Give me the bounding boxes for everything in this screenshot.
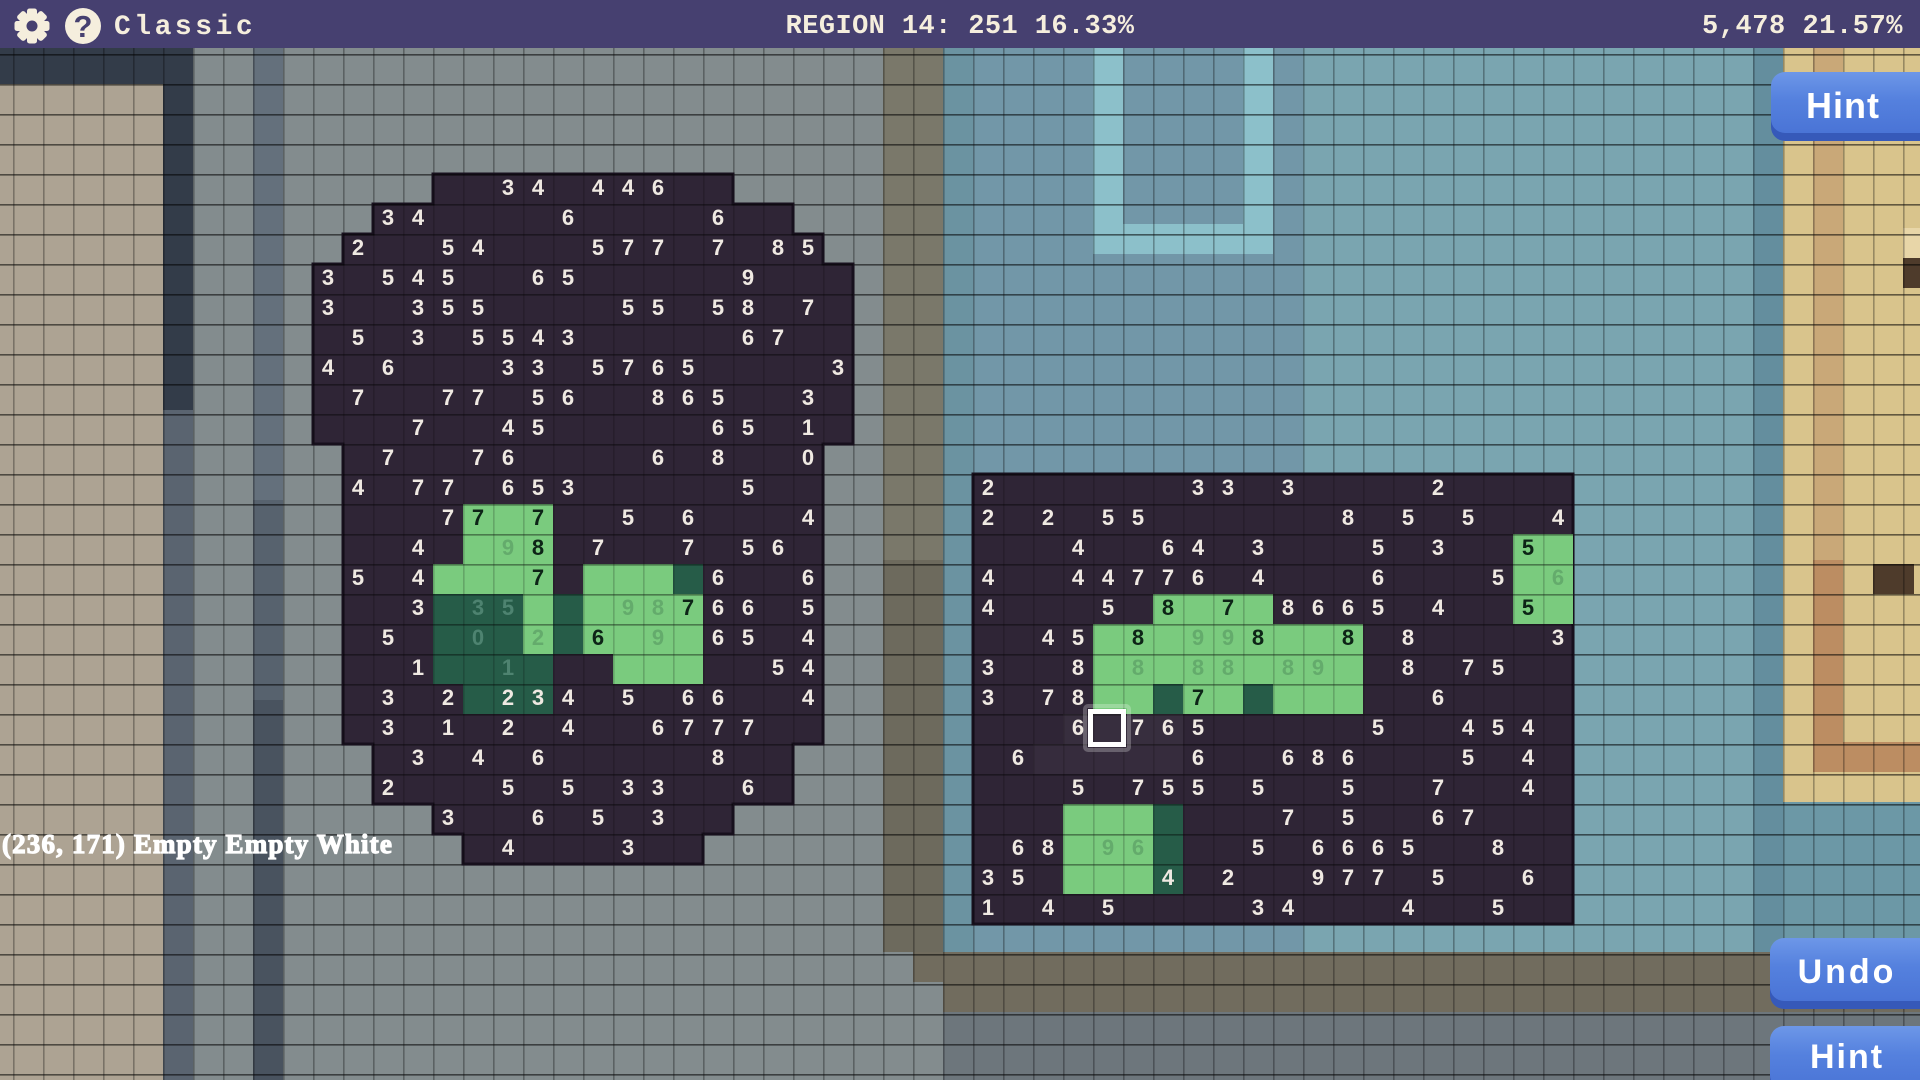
svg-text:9: 9: [1102, 835, 1114, 860]
svg-text:4: 4: [532, 175, 545, 200]
svg-text:5,478 21.57%: 5,478 21.57%: [1702, 12, 1903, 42]
svg-text:5: 5: [1192, 775, 1204, 800]
svg-text:7: 7: [472, 445, 484, 470]
svg-text:8: 8: [1342, 505, 1354, 530]
svg-text:4: 4: [1102, 565, 1115, 590]
svg-text:5: 5: [742, 535, 754, 560]
svg-text:8: 8: [1312, 745, 1324, 770]
svg-text:2: 2: [502, 685, 514, 710]
svg-text:6: 6: [652, 355, 664, 380]
svg-text:3: 3: [802, 385, 814, 410]
svg-text:5: 5: [562, 265, 574, 290]
svg-text:5: 5: [712, 295, 724, 320]
svg-text:7: 7: [472, 505, 484, 530]
svg-text:5: 5: [622, 295, 634, 320]
svg-text:2: 2: [1042, 505, 1054, 530]
svg-text:7: 7: [1132, 715, 1144, 740]
svg-text:3: 3: [382, 685, 394, 710]
svg-text:5: 5: [442, 265, 454, 290]
svg-text:2: 2: [1432, 475, 1444, 500]
svg-text:7: 7: [1042, 685, 1054, 710]
svg-text:4: 4: [412, 205, 425, 230]
svg-text:5: 5: [1132, 505, 1144, 530]
svg-text:7: 7: [382, 445, 394, 470]
svg-text:7: 7: [712, 235, 724, 260]
svg-text:5: 5: [1372, 535, 1384, 560]
svg-text:8: 8: [652, 595, 664, 620]
svg-text:4: 4: [982, 595, 995, 620]
svg-text:8: 8: [1072, 685, 1084, 710]
svg-text:7: 7: [682, 595, 694, 620]
svg-text:5: 5: [772, 655, 784, 680]
svg-text:4: 4: [1042, 625, 1055, 650]
svg-text:8: 8: [1192, 655, 1204, 680]
svg-text:6: 6: [1312, 835, 1324, 860]
svg-text:6: 6: [1282, 745, 1294, 770]
svg-text:3: 3: [652, 775, 664, 800]
svg-text:8: 8: [1072, 655, 1084, 680]
svg-text:5: 5: [712, 385, 724, 410]
svg-text:6: 6: [1192, 565, 1204, 590]
svg-text:9: 9: [502, 535, 514, 560]
svg-text:5: 5: [1192, 715, 1204, 740]
svg-text:4: 4: [1522, 745, 1535, 770]
svg-text:4: 4: [352, 475, 365, 500]
svg-text:5: 5: [1072, 625, 1084, 650]
svg-text:3: 3: [1432, 535, 1444, 560]
svg-text:3: 3: [382, 715, 394, 740]
svg-text:6: 6: [1012, 835, 1024, 860]
svg-text:3: 3: [562, 325, 574, 350]
svg-text:3: 3: [532, 685, 544, 710]
svg-text:3: 3: [1252, 535, 1264, 560]
svg-text:1: 1: [442, 715, 454, 740]
svg-text:3: 3: [1192, 475, 1204, 500]
svg-text:5: 5: [1252, 775, 1264, 800]
svg-text:3: 3: [412, 325, 424, 350]
svg-text:7: 7: [532, 565, 544, 590]
svg-text:7: 7: [532, 505, 544, 530]
svg-text:6: 6: [712, 415, 724, 440]
svg-text:7: 7: [1372, 865, 1384, 890]
svg-text:4: 4: [412, 265, 425, 290]
svg-text:6: 6: [1342, 595, 1354, 620]
svg-text:4: 4: [802, 625, 815, 650]
svg-text:7: 7: [412, 475, 424, 500]
svg-text:8: 8: [1222, 655, 1234, 680]
svg-text:4: 4: [472, 745, 485, 770]
svg-text:5: 5: [502, 775, 514, 800]
svg-text:6: 6: [1432, 805, 1444, 830]
svg-text:5: 5: [382, 265, 394, 290]
svg-text:4: 4: [322, 355, 335, 380]
svg-text:7: 7: [682, 535, 694, 560]
svg-text:4: 4: [1072, 565, 1085, 590]
svg-text:5: 5: [532, 475, 544, 500]
svg-text:6: 6: [1342, 835, 1354, 860]
svg-text:7: 7: [412, 415, 424, 440]
svg-text:6: 6: [712, 595, 724, 620]
svg-text:4: 4: [622, 175, 635, 200]
svg-text:9: 9: [1312, 655, 1324, 680]
svg-text:5: 5: [1402, 505, 1414, 530]
svg-text:8: 8: [1402, 625, 1414, 650]
svg-text:3: 3: [532, 355, 544, 380]
svg-text:6: 6: [742, 775, 754, 800]
svg-text:4: 4: [802, 685, 815, 710]
svg-text:9: 9: [1312, 865, 1324, 890]
svg-text:7: 7: [622, 355, 634, 380]
svg-text:3: 3: [382, 205, 394, 230]
svg-text:6: 6: [742, 325, 754, 350]
svg-text:8: 8: [772, 235, 784, 260]
svg-text:5: 5: [472, 295, 484, 320]
svg-text:5: 5: [1342, 775, 1354, 800]
svg-text:4: 4: [502, 415, 515, 440]
svg-text:5: 5: [502, 325, 514, 350]
svg-text:7: 7: [1162, 565, 1174, 590]
svg-text:6: 6: [712, 625, 724, 650]
svg-text:4: 4: [1432, 595, 1445, 620]
svg-text:5: 5: [1072, 775, 1084, 800]
svg-text:7: 7: [772, 325, 784, 350]
svg-text:0: 0: [472, 625, 484, 650]
svg-text:2: 2: [982, 505, 994, 530]
svg-text:7: 7: [652, 235, 664, 260]
svg-text:5: 5: [622, 505, 634, 530]
svg-text:5: 5: [1432, 865, 1444, 890]
svg-text:3: 3: [412, 595, 424, 620]
svg-text:4: 4: [1552, 505, 1565, 530]
svg-text:5: 5: [1492, 565, 1504, 590]
svg-text:3: 3: [1222, 475, 1234, 500]
svg-text:7: 7: [1342, 865, 1354, 890]
svg-text:6: 6: [742, 595, 754, 620]
svg-text:5: 5: [562, 775, 574, 800]
svg-text:5: 5: [622, 685, 634, 710]
svg-text:5: 5: [382, 625, 394, 650]
svg-text:8: 8: [712, 445, 724, 470]
svg-text:2: 2: [382, 775, 394, 800]
svg-text:5: 5: [592, 805, 604, 830]
svg-text:5: 5: [1102, 505, 1114, 530]
svg-text:9: 9: [742, 265, 754, 290]
svg-text:5: 5: [502, 595, 514, 620]
svg-text:5: 5: [1522, 595, 1534, 620]
svg-text:3: 3: [652, 805, 664, 830]
svg-text:4: 4: [1192, 535, 1205, 560]
svg-text:5: 5: [592, 235, 604, 260]
svg-text:8: 8: [532, 535, 544, 560]
svg-text:5: 5: [1102, 595, 1114, 620]
svg-text:6: 6: [382, 355, 394, 380]
svg-text:8: 8: [1342, 625, 1354, 650]
svg-text:Classic: Classic: [114, 12, 256, 43]
svg-text:6: 6: [502, 445, 514, 470]
svg-text:3: 3: [1282, 475, 1294, 500]
svg-text:4: 4: [1282, 895, 1295, 920]
svg-text:6: 6: [1162, 715, 1174, 740]
svg-text:3: 3: [622, 775, 634, 800]
svg-text:5: 5: [1522, 535, 1534, 560]
svg-text:6: 6: [592, 625, 604, 650]
svg-text:4: 4: [592, 175, 605, 200]
svg-text:6: 6: [532, 805, 544, 830]
svg-text:3: 3: [1252, 895, 1264, 920]
svg-text:6: 6: [682, 385, 694, 410]
svg-text:6: 6: [682, 505, 694, 530]
svg-text:6: 6: [802, 565, 814, 590]
svg-text:5: 5: [472, 325, 484, 350]
svg-text:9: 9: [622, 595, 634, 620]
svg-text:REGION 14: 251 16.33%: REGION 14: 251 16.33%: [786, 12, 1135, 42]
svg-text:6: 6: [682, 685, 694, 710]
svg-text:5: 5: [592, 355, 604, 380]
svg-text:4: 4: [802, 655, 815, 680]
svg-text:(236, 171) Empty Empty White: (236, 171) Empty Empty White: [2, 829, 393, 859]
svg-text:5: 5: [1462, 745, 1474, 770]
svg-text:1: 1: [802, 415, 814, 440]
svg-text:3: 3: [412, 745, 424, 770]
svg-text:7: 7: [682, 715, 694, 740]
svg-text:2: 2: [1222, 865, 1234, 890]
svg-text:8: 8: [742, 295, 754, 320]
svg-text:7: 7: [352, 385, 364, 410]
svg-text:8: 8: [1132, 625, 1144, 650]
svg-text:7: 7: [802, 295, 814, 320]
svg-text:4: 4: [1462, 715, 1475, 740]
svg-text:3: 3: [502, 175, 514, 200]
svg-text:6: 6: [532, 265, 544, 290]
svg-text:5: 5: [1492, 655, 1504, 680]
svg-text:6: 6: [562, 205, 574, 230]
svg-text:5: 5: [352, 325, 364, 350]
svg-text:6: 6: [712, 205, 724, 230]
svg-text:4: 4: [802, 505, 815, 530]
svg-text:7: 7: [472, 385, 484, 410]
svg-text:7: 7: [1462, 655, 1474, 680]
svg-text:8: 8: [1492, 835, 1504, 860]
svg-text:Hint: Hint: [1810, 1038, 1884, 1076]
svg-text:5: 5: [442, 235, 454, 260]
svg-text:5: 5: [442, 295, 454, 320]
svg-text:4: 4: [982, 565, 995, 590]
svg-text:6: 6: [712, 565, 724, 590]
svg-text:6: 6: [652, 715, 664, 740]
svg-text:8: 8: [712, 745, 724, 770]
svg-text:8: 8: [1282, 655, 1294, 680]
svg-text:7: 7: [592, 535, 604, 560]
svg-text:4: 4: [472, 235, 485, 260]
svg-text:6: 6: [1132, 835, 1144, 860]
svg-text:6: 6: [1012, 745, 1024, 770]
svg-text:1: 1: [412, 655, 424, 680]
svg-text:7: 7: [1132, 775, 1144, 800]
svg-text:5: 5: [1162, 775, 1174, 800]
svg-text:6: 6: [1372, 835, 1384, 860]
svg-text:3: 3: [982, 685, 994, 710]
svg-text:2: 2: [982, 475, 994, 500]
svg-text:6: 6: [1342, 745, 1354, 770]
svg-text:7: 7: [1462, 805, 1474, 830]
svg-text:5: 5: [1402, 835, 1414, 860]
svg-text:2: 2: [442, 685, 454, 710]
svg-text:4: 4: [1402, 895, 1415, 920]
svg-text:6: 6: [532, 745, 544, 770]
svg-text:7: 7: [442, 505, 454, 530]
svg-text:5: 5: [352, 565, 364, 590]
svg-text:?: ?: [74, 9, 93, 44]
svg-text:4: 4: [562, 715, 575, 740]
svg-text:7: 7: [622, 235, 634, 260]
svg-text:8: 8: [1252, 625, 1264, 650]
svg-text:4: 4: [412, 565, 425, 590]
svg-text:4: 4: [1252, 565, 1265, 590]
svg-text:7: 7: [442, 475, 454, 500]
svg-text:4: 4: [1522, 775, 1535, 800]
svg-text:5: 5: [1492, 715, 1504, 740]
svg-text:5: 5: [742, 415, 754, 440]
svg-text:7: 7: [742, 715, 754, 740]
svg-text:6: 6: [1312, 595, 1324, 620]
svg-text:6: 6: [652, 445, 664, 470]
svg-text:5: 5: [1012, 865, 1024, 890]
svg-text:7: 7: [1192, 685, 1204, 710]
svg-text:7: 7: [1432, 775, 1444, 800]
svg-text:6: 6: [1522, 865, 1534, 890]
svg-text:2: 2: [502, 715, 514, 740]
svg-text:6: 6: [652, 175, 664, 200]
svg-text:6: 6: [1072, 715, 1084, 740]
svg-text:3: 3: [322, 295, 334, 320]
svg-text:8: 8: [1402, 655, 1414, 680]
svg-text:4: 4: [532, 325, 545, 350]
svg-text:Undo: Undo: [1798, 953, 1897, 991]
svg-text:4: 4: [1042, 895, 1055, 920]
svg-text:6: 6: [1192, 745, 1204, 770]
svg-text:5: 5: [742, 475, 754, 500]
svg-text:1: 1: [982, 895, 994, 920]
svg-text:5: 5: [652, 295, 664, 320]
svg-text:5: 5: [802, 235, 814, 260]
svg-text:4: 4: [1072, 535, 1085, 560]
svg-text:4: 4: [502, 835, 515, 860]
svg-text:9: 9: [652, 625, 664, 650]
svg-text:6: 6: [712, 685, 724, 710]
svg-text:9: 9: [1192, 625, 1204, 650]
svg-text:5: 5: [1372, 595, 1384, 620]
svg-text:8: 8: [652, 385, 664, 410]
svg-text:2: 2: [352, 235, 364, 260]
svg-text:7: 7: [442, 385, 454, 410]
svg-text:8: 8: [1162, 595, 1174, 620]
svg-text:7: 7: [712, 715, 724, 740]
svg-text:3: 3: [412, 295, 424, 320]
svg-text:5: 5: [802, 595, 814, 620]
svg-text:5: 5: [1252, 835, 1264, 860]
svg-text:2: 2: [532, 625, 544, 650]
svg-text:6: 6: [1162, 535, 1174, 560]
svg-text:6: 6: [1432, 685, 1444, 710]
svg-text:5: 5: [532, 415, 544, 440]
svg-text:3: 3: [982, 655, 994, 680]
svg-text:6: 6: [1552, 565, 1564, 590]
svg-text:5: 5: [682, 355, 694, 380]
svg-text:5: 5: [742, 625, 754, 650]
svg-text:6: 6: [772, 535, 784, 560]
svg-text:3: 3: [832, 355, 844, 380]
svg-text:6: 6: [502, 475, 514, 500]
svg-text:5: 5: [1372, 715, 1384, 740]
svg-text:5: 5: [1492, 895, 1504, 920]
svg-text:3: 3: [562, 475, 574, 500]
svg-text:3: 3: [622, 835, 634, 860]
svg-text:7: 7: [1132, 565, 1144, 590]
svg-text:4: 4: [1522, 715, 1535, 740]
svg-text:8: 8: [1132, 655, 1144, 680]
svg-text:4: 4: [562, 685, 575, 710]
svg-text:3: 3: [472, 595, 484, 620]
svg-text:3: 3: [502, 355, 514, 380]
svg-text:6: 6: [1372, 565, 1384, 590]
svg-text:7: 7: [1282, 805, 1294, 830]
svg-text:3: 3: [982, 865, 994, 890]
svg-text:9: 9: [1222, 625, 1234, 650]
svg-text:4: 4: [412, 535, 425, 560]
svg-text:5: 5: [1342, 805, 1354, 830]
svg-text:8: 8: [1282, 595, 1294, 620]
svg-text:0: 0: [802, 445, 814, 470]
svg-text:3: 3: [322, 265, 334, 290]
svg-text:4: 4: [1162, 865, 1175, 890]
svg-text:7: 7: [1222, 595, 1234, 620]
svg-text:1: 1: [502, 655, 514, 680]
svg-text:5: 5: [532, 385, 544, 410]
svg-text:6: 6: [562, 385, 574, 410]
svg-text:Hint: Hint: [1806, 85, 1880, 126]
svg-text:3: 3: [442, 805, 454, 830]
svg-text:3: 3: [1552, 625, 1564, 650]
svg-text:5: 5: [1102, 895, 1114, 920]
svg-text:8: 8: [1042, 835, 1054, 860]
svg-text:5: 5: [1462, 505, 1474, 530]
